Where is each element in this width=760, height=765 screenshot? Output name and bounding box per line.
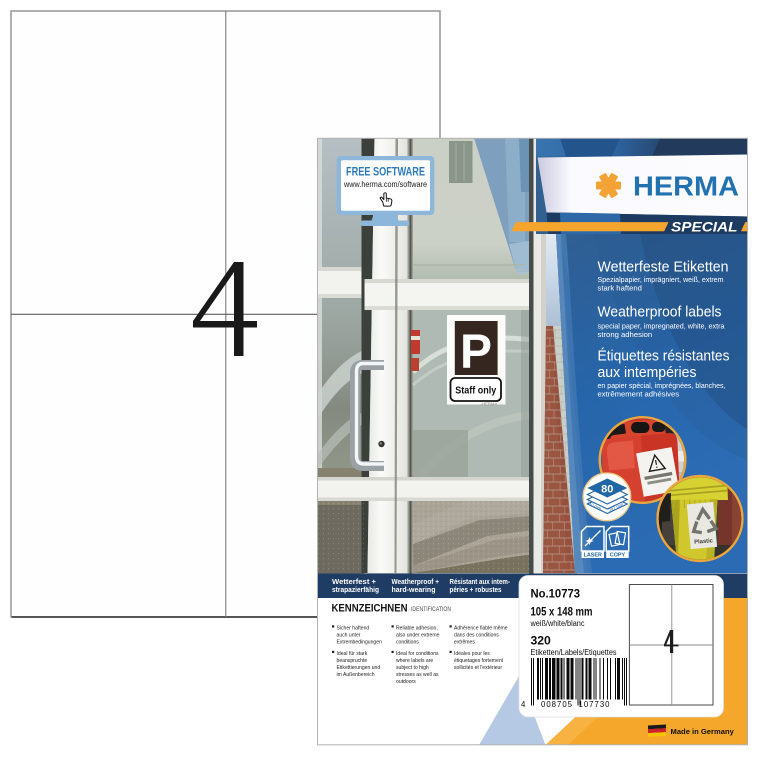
svg-text:étiquetages fortement: étiquetages fortement (454, 658, 503, 664)
svg-text:Staff only: Staff only (455, 386, 496, 397)
svg-text:80: 80 (601, 483, 613, 495)
svg-text:hard-wearing: hard-wearing (392, 585, 436, 594)
svg-text:P: P (460, 326, 492, 379)
svg-text:Idéales pour les: Idéales pour les (454, 651, 490, 657)
svg-text:weiß/white/blanc: weiß/white/blanc (530, 619, 585, 628)
svg-text:Reliable adhesion,: Reliable adhesion, (396, 625, 438, 631)
svg-text:aux intempéries: aux intempéries (598, 365, 697, 381)
svg-text:outdoors: outdoors (396, 679, 416, 685)
svg-text:sollicités et l'extérieur: sollicités et l'extérieur (454, 665, 502, 671)
svg-text:Made in Germany: Made in Germany (671, 727, 735, 736)
svg-text:IDENTIFICATION: IDENTIFICATION (411, 606, 451, 613)
svg-text:Etikettierungen und: Etikettierungen und (337, 665, 381, 671)
svg-text:strong adhesion: strong adhesion (598, 330, 653, 339)
svg-text:also under extreme: also under extreme (396, 632, 439, 638)
svg-text:beanspruchte: beanspruchte (337, 658, 368, 664)
svg-text:SPECIAL: SPECIAL (671, 220, 738, 235)
svg-text:-HERMA: -HERMA (481, 402, 498, 407)
svg-text:FREE SOFTWARE: FREE SOFTWARE (346, 165, 425, 179)
svg-text:stresses as well as: stresses as well as (396, 672, 439, 678)
svg-text:Wetterfeste Etiketten: Wetterfeste Etiketten (598, 260, 729, 276)
svg-text:Ideal für stark: Ideal für stark (337, 651, 368, 657)
svg-text:320: 320 (531, 634, 552, 648)
svg-text:No.10773: No.10773 (531, 587, 581, 601)
svg-text:HERMA: HERMA (633, 171, 739, 202)
svg-text:extrêmes: extrêmes (454, 639, 475, 645)
svg-text:conditions: conditions (396, 639, 419, 645)
svg-text:stark haftend: stark haftend (598, 283, 642, 292)
svg-text:dans des conditions: dans des conditions (454, 632, 499, 638)
svg-text:KENNZEICHNEN: KENNZEICHNEN (332, 602, 408, 615)
svg-text:4: 4 (521, 700, 526, 709)
svg-text:008705: 008705 (541, 700, 573, 709)
svg-text:péries + robustes: péries + robustes (450, 585, 502, 594)
svg-text:COPY: COPY (610, 553, 626, 559)
svg-text:Weatherproof labels: Weatherproof labels (598, 305, 722, 321)
svg-text:Sicher haftend: Sicher haftend (337, 625, 370, 631)
svg-text:extrêmement adhésives: extrêmement adhésives (598, 390, 680, 399)
svg-text:Étiquettes résistantes: Étiquettes résistantes (598, 348, 730, 365)
svg-text:Ideal for conditions: Ideal for conditions (396, 651, 439, 657)
svg-text:Etiketten/Labels/Etiquettes: Etiketten/Labels/Etiquettes (531, 648, 617, 657)
svg-text:Adhérence fiable même: Adhérence fiable même (454, 625, 508, 631)
svg-text:Extrembedingungen: Extrembedingungen (337, 639, 382, 645)
svg-text:strapazierfähig: strapazierfähig (332, 585, 379, 594)
svg-text:auch unter: auch unter (337, 632, 361, 638)
svg-text:im Außenbereich: im Außenbereich (337, 672, 375, 678)
svg-text:LASER: LASER (584, 553, 602, 559)
svg-text:105 x 148 mm: 105 x 148 mm (531, 605, 593, 619)
svg-text:subject to high: subject to high (396, 665, 429, 671)
svg-text:107730: 107730 (579, 700, 611, 709)
svg-text:where labels are: where labels are (395, 658, 433, 664)
svg-text:www.herma.com/software: www.herma.com/software (343, 179, 427, 189)
